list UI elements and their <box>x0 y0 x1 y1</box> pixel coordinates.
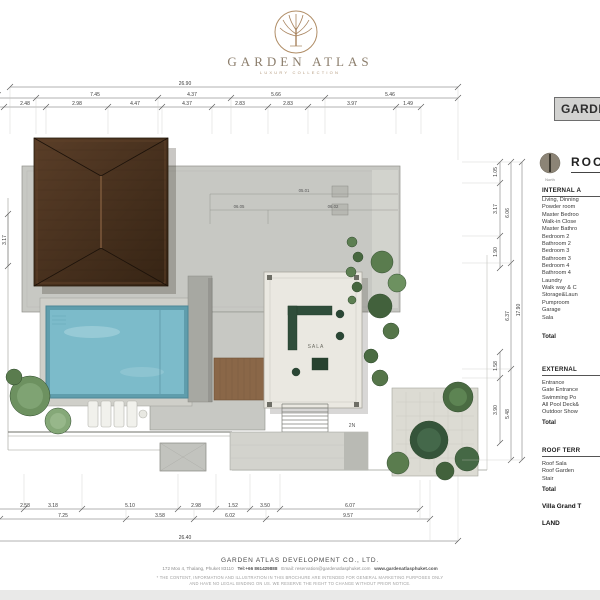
list-item: Master Bedroo <box>542 212 600 219</box>
company-website[interactable]: www.gardenatlasphuket.com <box>374 566 437 571</box>
list-item: Walk way & C <box>542 285 600 292</box>
swimming-pool <box>46 306 188 398</box>
list-item: Bedroom 4 <box>542 263 600 270</box>
svg-text:1.52: 1.52 <box>228 503 238 509</box>
internal-area-list: Living, Dinning Powder room Master Bedro… <box>542 197 600 322</box>
svg-text:5.48: 5.48 <box>505 409 511 419</box>
company-address: 172 Moo 4, Thalang, Phuket 83110 <box>162 566 233 571</box>
svg-text:2.58: 2.58 <box>20 503 30 509</box>
svg-text:5.66: 5.66 <box>271 92 281 98</box>
svg-text:7.45: 7.45 <box>90 92 100 98</box>
hip-roof <box>34 138 176 294</box>
svg-text:5.46: 5.46 <box>385 92 395 98</box>
svg-text:2.48: 2.48 <box>20 101 30 107</box>
svg-text:3.17: 3.17 <box>2 235 8 245</box>
svg-text:6.07: 6.07 <box>345 503 355 509</box>
brand-tagline: LUXURY COLLECTION <box>0 70 600 75</box>
stair-level-label: 2N <box>349 423 356 429</box>
company-email: Email: reservation@gardenatlasphuket.com <box>281 566 370 571</box>
svg-text:3.97: 3.97 <box>0 92 1 98</box>
driveway <box>230 432 368 470</box>
roof-terrace-list: Roof Sala Roof Garden Stair <box>542 461 600 483</box>
list-item: Bathroom 2 <box>542 241 600 248</box>
company-name: GARDEN ATLAS DEVELOPMENT CO., LTD. <box>0 557 600 564</box>
svg-text:3.50: 3.50 <box>260 503 270 509</box>
external-total: Total <box>542 420 600 426</box>
list-item: Bedroom 2 <box>542 234 600 241</box>
sala-pavilion: SALA <box>264 272 368 414</box>
dim-top-overall: 26.90 <box>179 81 192 87</box>
list-item: Bedroom 3 <box>542 248 600 255</box>
svg-text:1.49: 1.49 <box>403 101 413 107</box>
list-item: Powder room <box>542 204 600 211</box>
svg-text:2.83: 2.83 <box>283 101 293 107</box>
north-arrow-icon: North <box>540 153 560 182</box>
list-item: Swimming Po <box>542 395 600 402</box>
svg-text:4.47: 4.47 <box>130 101 140 107</box>
dim-bottom-overall: 26.40 <box>179 535 192 541</box>
list-item: All Pool Deck& <box>542 402 600 409</box>
internal-total: Total <box>542 334 600 340</box>
svg-text:06.05: 06.05 <box>234 204 245 209</box>
list-item: Garage <box>542 307 600 314</box>
svg-text:1.05: 1.05 <box>493 167 499 177</box>
list-item: Stair <box>542 476 600 483</box>
sheet-title-box: GARDEN <box>554 97 600 121</box>
svg-text:5.10: 5.10 <box>125 503 135 509</box>
svg-text:6.02: 6.02 <box>225 513 235 519</box>
roof-plan-drawing: SALA 2N <box>0 0 600 600</box>
list-item: Pumproom <box>542 300 600 307</box>
list-item: Entrance <box>542 380 600 387</box>
company-tel: Tel:+66 861429888 <box>238 566 278 571</box>
list-item: Living, Dinning <box>542 197 600 204</box>
svg-text:4.37: 4.37 <box>187 92 197 98</box>
list-item: Gate Entrance <box>542 387 600 394</box>
brochure-page: SALA 2N <box>0 0 600 600</box>
svg-text:2.98: 2.98 <box>72 101 82 107</box>
disclaimer-line-1: * THE CONTENT, INFORMATION AND ILLUSTRAT… <box>0 575 600 580</box>
svg-text:3.58: 3.58 <box>155 513 165 519</box>
walkway-roof <box>188 276 213 402</box>
svg-text:7.25: 7.25 <box>58 513 68 519</box>
svg-text:3.97: 3.97 <box>347 101 357 107</box>
list-item: Roof Sala <box>542 461 600 468</box>
roof-terrace-total: Total <box>542 487 600 493</box>
site-plan: SALA 2N <box>6 138 487 480</box>
svg-text:2.83: 2.83 <box>235 101 245 107</box>
roof-terrace-header: ROOF TERR <box>542 447 600 457</box>
list-item: Bathroom 3 <box>542 256 600 263</box>
land-label: LAND <box>542 520 600 527</box>
external-area-list: Entrance Gate Entrance Swimming Po All P… <box>542 380 600 417</box>
external-area-header: EXTERNAL <box>542 366 600 376</box>
svg-text:1.90: 1.90 <box>493 247 499 257</box>
list-item: Laundry <box>542 278 600 285</box>
dim-right-overall: 17.90 <box>516 304 522 317</box>
svg-text:6.37: 6.37 <box>505 311 511 321</box>
garage-box <box>160 443 206 471</box>
list-item: Walk-in Close <box>542 219 600 226</box>
logo-tree-icon <box>275 11 317 53</box>
disclaimer-line-2: AND HAVE NO LEGAL BINDING ON US. WE RESE… <box>0 581 600 586</box>
svg-text:05.01: 05.01 <box>299 188 310 193</box>
svg-text:1.58: 1.58 <box>493 361 499 371</box>
stairs <box>282 404 328 432</box>
svg-text:3.18: 3.18 <box>48 503 58 509</box>
svg-text:2.98: 2.98 <box>191 503 201 509</box>
north-label: North <box>545 177 555 182</box>
list-item: Bathroom 4 <box>542 270 600 277</box>
svg-text:4.37: 4.37 <box>182 101 192 107</box>
sala-label: SALA <box>308 344 325 350</box>
svg-text:3.17: 3.17 <box>493 204 499 214</box>
list-item: Outdoor Show <box>542 409 600 416</box>
brand-name: GARDEN ATLAS <box>0 54 600 70</box>
svg-text:06.02: 06.02 <box>328 204 339 209</box>
internal-area-header: INTERNAL A <box>542 187 600 197</box>
svg-text:6.06: 6.06 <box>505 208 511 218</box>
list-item: Roof Garden <box>542 468 600 475</box>
list-item: Master Bathro <box>542 226 600 233</box>
footer-band <box>0 590 600 600</box>
svg-text:9.57: 9.57 <box>343 513 353 519</box>
svg-text:3.90: 3.90 <box>493 405 499 415</box>
list-item: Storage&Laun <box>542 292 600 299</box>
company-contact-line: 172 Moo 4, Thalang, Phuket 83110 Tel:+66… <box>0 566 600 571</box>
wood-deck <box>214 358 264 400</box>
list-item: Sala <box>542 315 600 322</box>
villa-grand-total: Villa Grand T <box>542 503 600 510</box>
plan-title: ROOF <box>571 155 600 173</box>
